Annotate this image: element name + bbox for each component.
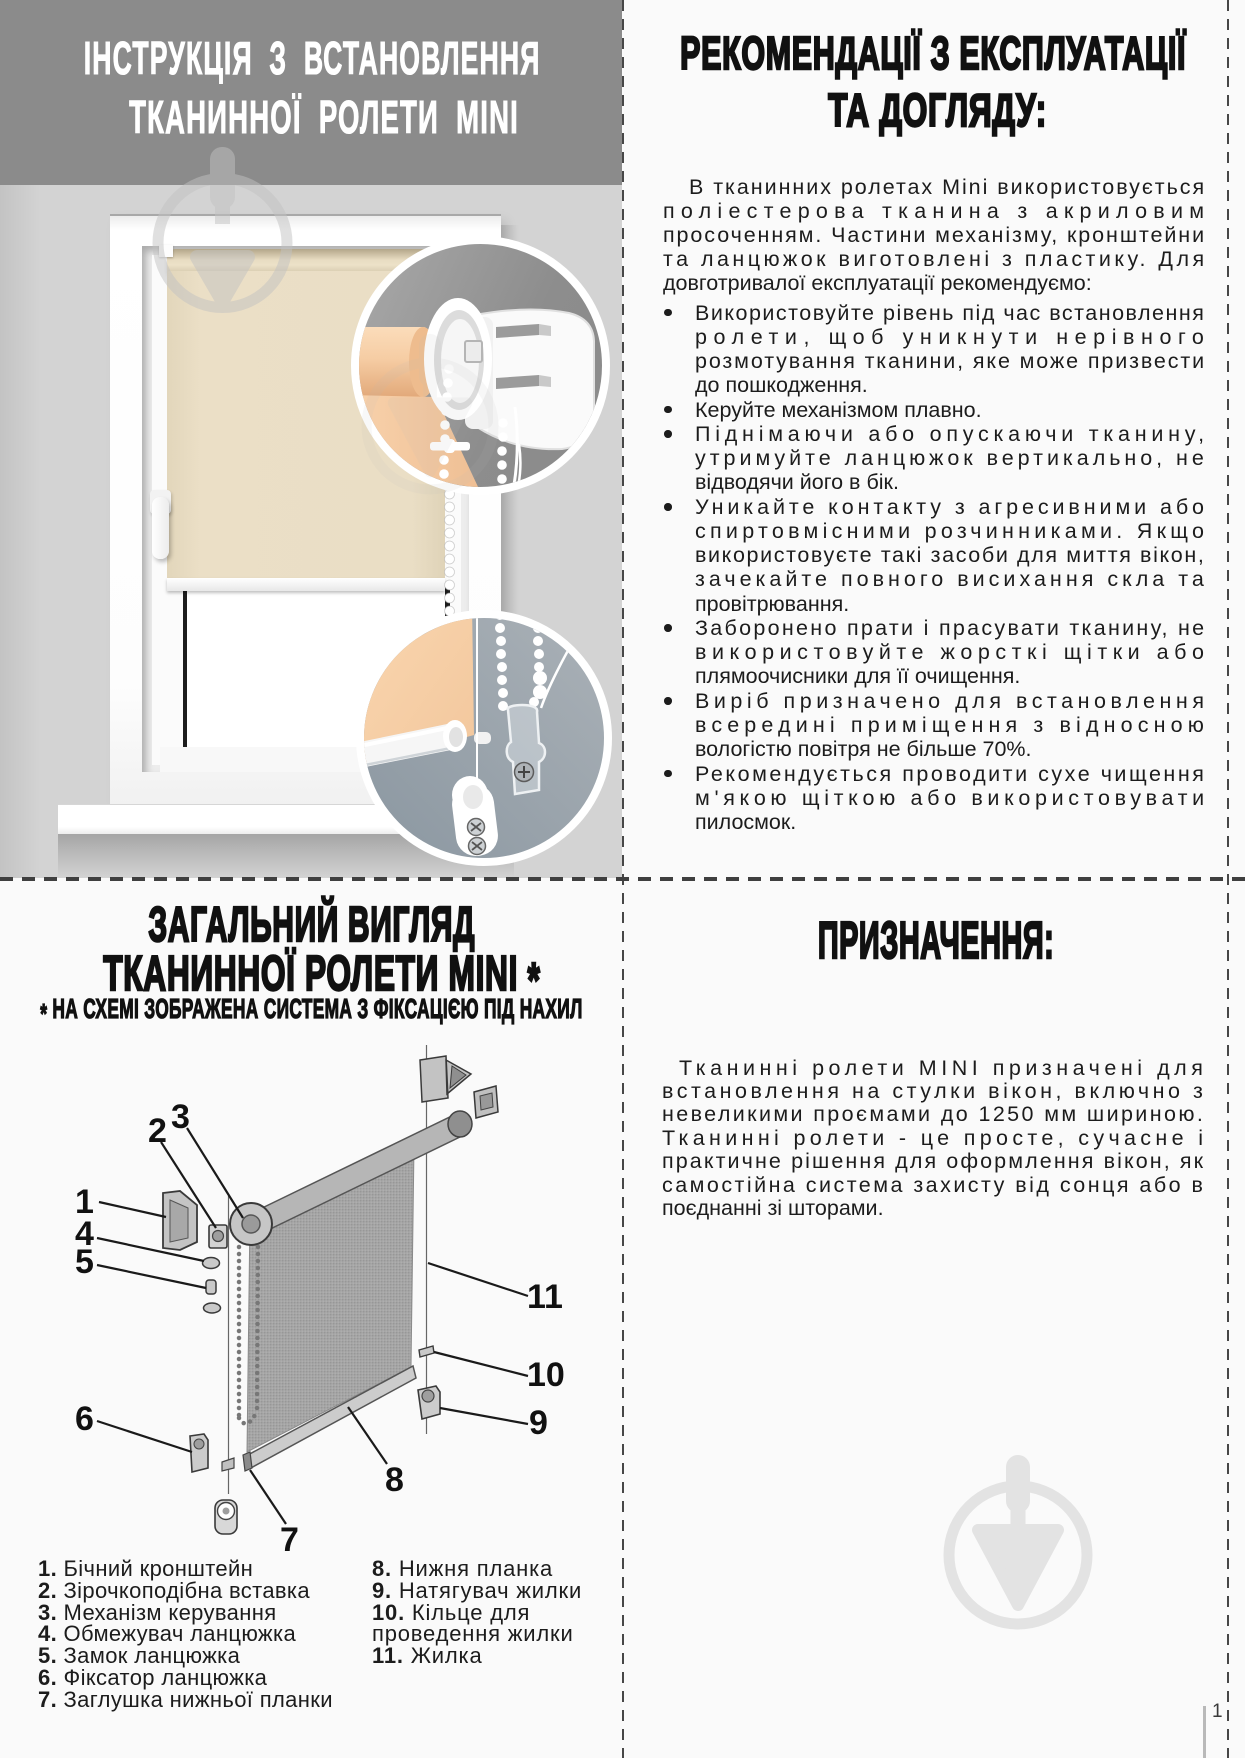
svg-text:10: 10: [527, 1356, 565, 1394]
svg-text:11: 11: [527, 1278, 563, 1316]
svg-text:5: 5: [75, 1243, 94, 1281]
svg-text:7: 7: [280, 1521, 299, 1558]
svg-text:3: 3: [171, 1098, 190, 1136]
svg-text:9: 9: [529, 1404, 548, 1442]
svg-text:8: 8: [385, 1461, 404, 1499]
svg-text:6: 6: [75, 1400, 94, 1438]
svg-text:2: 2: [148, 1112, 167, 1150]
